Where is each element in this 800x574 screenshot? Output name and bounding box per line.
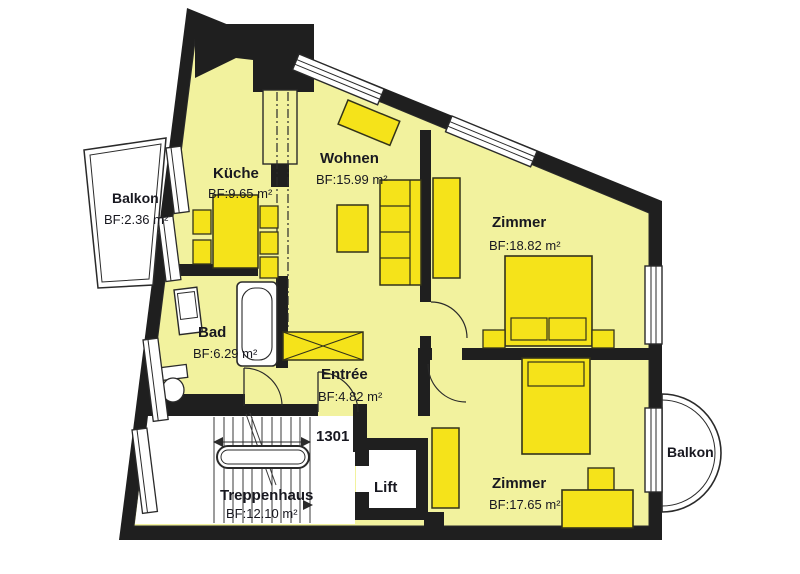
kitchen-chair: [193, 210, 211, 234]
room-label-kueche: Küche: [213, 165, 259, 182]
room-label-zimmer-nord: Zimmer: [492, 214, 546, 231]
area-label-treppenhaus: BF:12.10 m²: [226, 506, 298, 521]
room-label-zimmer-sued: Zimmer: [492, 475, 546, 492]
floor-plan-drawing: Küche BF:9.65 m² Wohnen BF:15.99 m² Zimm…: [0, 0, 800, 574]
unit-number-label: 1301: [316, 428, 349, 445]
lift-door-opening: [356, 466, 369, 492]
pillow: [511, 318, 547, 340]
window-east: [645, 266, 662, 344]
closet-crossed: [283, 332, 363, 360]
chimney-stub: [271, 164, 289, 187]
handrail: [217, 446, 309, 468]
sofa: [380, 180, 421, 285]
room-label-wohnen: Wohnen: [320, 150, 379, 167]
nightstand: [483, 330, 505, 348]
wall-stub-south: [424, 512, 444, 530]
lift-wall-stub-sw: [355, 492, 369, 520]
chimney-shaft: [263, 90, 297, 164]
area-label-zimmer-nord: BF:18.82 m²: [489, 238, 561, 253]
room-label-bad: Bad: [198, 324, 226, 341]
pillow: [549, 318, 586, 340]
room-label-balkon-ost: Balkon: [667, 444, 714, 460]
kitchen-chair: [260, 257, 278, 278]
wall-divider-stub: [418, 348, 432, 360]
kitchen-chair: [260, 206, 278, 228]
lift-wall-east: [416, 438, 428, 520]
area-label-bad: BF:6.29 m²: [193, 346, 258, 361]
coffee-table: [337, 205, 368, 252]
floor-plan-page: Küche BF:9.65 m² Wohnen BF:15.99 m² Zimm…: [0, 0, 800, 574]
area-label-entree: BF:4.82 m²: [318, 389, 383, 404]
kitchen-chair: [193, 240, 211, 264]
room-label-treppenhaus: Treppenhaus: [220, 487, 313, 504]
balcony-door-east: [645, 408, 662, 492]
area-label-kueche: BF:9.65 m²: [208, 186, 273, 201]
area-label-zimmer-sued: BF:17.65 m²: [489, 497, 561, 512]
nightstand: [592, 330, 614, 348]
kitchen-table: [213, 195, 258, 268]
bed-north: [505, 256, 592, 346]
wardrobe: [433, 178, 460, 278]
desk-chair: [588, 468, 614, 490]
desk: [562, 490, 633, 528]
room-label-lift: Lift: [374, 479, 397, 496]
area-label-wohnen: BF:15.99 m²: [316, 172, 388, 187]
bed-south: [522, 358, 590, 454]
lift-wall-stub-nw: [355, 438, 369, 466]
area-label-balkon-west: BF:2.36 m²: [104, 212, 169, 227]
pillow: [528, 362, 584, 386]
room-label-entree: Entrée: [321, 366, 368, 383]
room-label-balkon-west: Balkon: [112, 190, 159, 206]
wardrobe: [432, 428, 459, 508]
kitchen-chair: [260, 232, 278, 254]
